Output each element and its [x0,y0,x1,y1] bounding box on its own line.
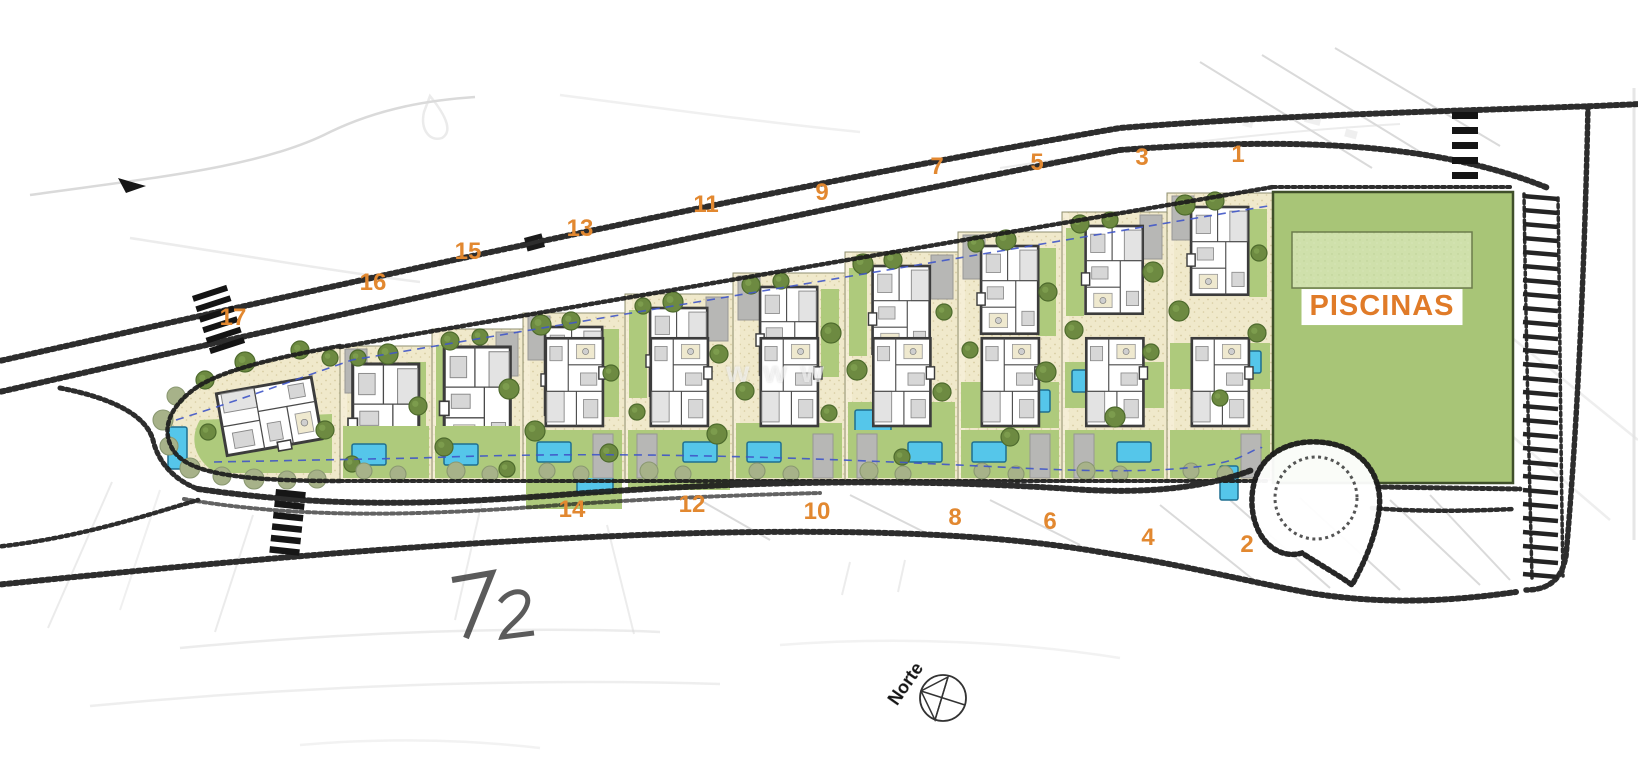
north-compass [920,675,966,721]
plot-label-6: 6 [1043,510,1056,534]
communal-pool [1292,232,1472,288]
plot-label-8: 8 [948,506,961,530]
plot-label-10: 10 [804,500,831,524]
plot-label-1: 1 [1231,143,1244,167]
plot-label-7: 7 [930,155,943,179]
hatch-block-topright [1452,112,1478,179]
plot-label-3: 3 [1135,146,1148,170]
plot-label-2: 2 [1240,533,1253,557]
plot-label-12: 12 [679,493,706,517]
plot-label-4: 4 [1141,526,1154,550]
plot-label-17: 17 [220,306,247,330]
plot-label-5: 5 [1030,151,1043,175]
site-plan: 17 16 15 13 11 9 7 5 3 1 14 12 10 8 6 4 … [0,0,1638,773]
plot-label-11: 11 [693,193,718,217]
plot-label-16: 16 [360,271,387,295]
site-plan-drawing [0,0,1638,773]
piscinas-label: PISCINAS [1302,289,1463,325]
cul-de-sac-loop [1252,442,1380,585]
plot-label-14: 14 [559,498,586,522]
plot-label-9: 9 [815,181,828,205]
plot-label-15: 15 [455,240,482,264]
plot-label-13: 13 [567,217,594,241]
